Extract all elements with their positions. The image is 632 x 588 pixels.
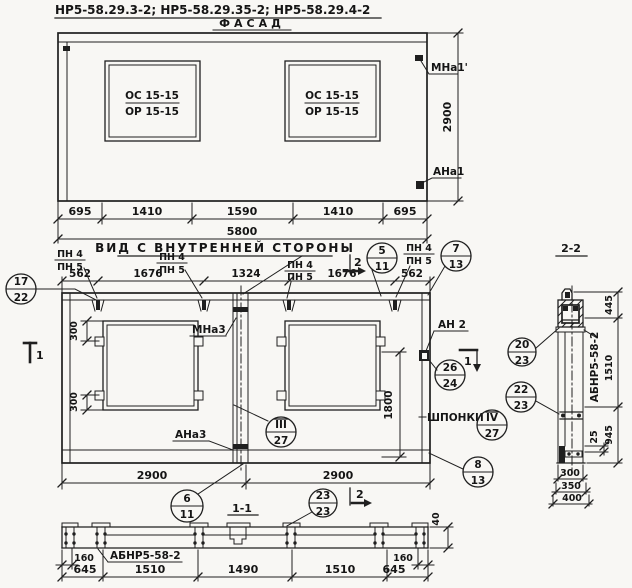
callout-bottom: 23 bbox=[514, 400, 529, 412]
cut-2-label: 2 bbox=[354, 256, 362, 269]
pn4-label: ПН 4 bbox=[57, 249, 83, 260]
pn5-label: ПН 5 bbox=[159, 265, 185, 276]
dim-25: 25 bbox=[589, 430, 600, 443]
callout-bottom: 23 bbox=[515, 355, 530, 367]
dim-5800: 5800 bbox=[227, 225, 258, 238]
section-1-1: 1-1 АБНР5-58-2 bbox=[56, 502, 453, 581]
dim-350: 350 bbox=[561, 481, 581, 492]
shponki-label: ШПОНКИ bbox=[427, 412, 484, 424]
dim-1800: 1800 bbox=[382, 348, 406, 461]
pn4-label: ПН 4 bbox=[287, 260, 313, 271]
dim-1324: 1324 bbox=[231, 268, 260, 280]
facade-window-2: ОС 15-15 ОР 15-15 bbox=[285, 61, 380, 141]
part-mark-label: АБНР5-58-2 bbox=[589, 332, 601, 403]
section-1-1-label: 1-1 bbox=[232, 502, 252, 515]
mark-ana3-label: АНа3 bbox=[175, 429, 206, 441]
facade-label: ФАСАД bbox=[219, 17, 285, 30]
dim-1410-2: 1410 bbox=[323, 205, 354, 218]
dim-300: 300 bbox=[69, 392, 80, 412]
pn4-label: ПН 4 bbox=[406, 243, 432, 254]
callout-bottom: 22 bbox=[14, 292, 29, 304]
anchor-tick bbox=[415, 55, 423, 61]
callout-top: 7 bbox=[452, 243, 459, 255]
section-2-2-shelf bbox=[560, 412, 582, 419]
dim-1800: 1800 bbox=[383, 390, 395, 419]
dim-1510: 1510 bbox=[604, 354, 615, 381]
section-2-2-foot bbox=[557, 446, 585, 463]
corner-anchor-mark bbox=[63, 46, 70, 51]
inner-view: ВИД С ВНУТРЕННЕЙ СТОРОНЫ 562 1676 1324 1… bbox=[24, 240, 484, 507]
pn-label-b: ПН 4 ПН 5 bbox=[157, 252, 202, 298]
dim-400: 400 bbox=[562, 493, 582, 504]
callout-bottom: 24 bbox=[443, 378, 458, 390]
callout-bottom: 11 bbox=[375, 261, 390, 273]
facade-view: ФАСАД ОС 15-15 ОР 15-15 ОС 15-15 ОР 15-1… bbox=[54, 17, 468, 243]
callout-bottom: 13 bbox=[449, 259, 464, 271]
panel-drawing: НР5-58.29.3-2; НР5-58.29.35-2; НР5-58.29… bbox=[0, 0, 632, 588]
dim-2900-facade: 2900 bbox=[441, 101, 454, 132]
mark-mna1-label: МНа1' bbox=[431, 62, 468, 74]
inner-window-2 bbox=[277, 321, 385, 410]
facade-height-dim: 2900 bbox=[427, 29, 463, 205]
drawing-title: НР5-58.29.3-2; НР5-58.29.35-2; НР5-58.29… bbox=[55, 3, 370, 17]
callout-7-13: 7 13 bbox=[428, 241, 471, 295]
facade-window-1: ОС 15-15 ОР 15-15 bbox=[105, 61, 200, 141]
callout-bottom: 27 bbox=[274, 435, 289, 447]
dim-2900-right: 2900 bbox=[323, 469, 354, 482]
callout-bottom: 11 bbox=[180, 509, 195, 521]
dim-645-left: 645 bbox=[74, 563, 97, 576]
cut-mark-2-bottom: 2 bbox=[350, 488, 372, 507]
callout-3-27: III 27 bbox=[234, 405, 296, 447]
callout-top: 6 bbox=[183, 493, 190, 505]
title-block: НР5-58.29.3-2; НР5-58.29.35-2; НР5-58.29… bbox=[55, 3, 381, 18]
section-1-1-dims: 160 160 645 1510 1490 1510 645 40 bbox=[56, 512, 453, 581]
dim-300: 300 bbox=[560, 468, 580, 479]
section-2-2-head bbox=[556, 300, 585, 332]
label-shponki: ШПОНКИ bbox=[419, 412, 484, 424]
dim-1590: 1590 bbox=[227, 205, 258, 218]
cut-mark-1-left: 1 bbox=[24, 343, 44, 362]
mark-mna3-label: МНа3 bbox=[192, 324, 226, 336]
inner-view-title: ВИД С ВНУТРЕННЕЙ СТОРОНЫ bbox=[95, 240, 355, 255]
inner-bottom-dims: 2900 2900 bbox=[58, 463, 434, 489]
dim-695-2: 695 bbox=[394, 205, 417, 218]
dim-695-1: 695 bbox=[69, 205, 92, 218]
callout-top: 5 bbox=[378, 245, 385, 257]
pn4-label: ПН 4 bbox=[159, 252, 185, 263]
facade-bottom-dims: 695 1410 1590 1410 695 5800 bbox=[54, 201, 431, 243]
pn5-label: ПН 5 bbox=[57, 262, 83, 273]
section-2-2-bottom-dims: 300 350 400 bbox=[549, 465, 593, 508]
part-mark-label: АБНР5-58-2 bbox=[110, 550, 181, 562]
window-mark-top: ОС 15-15 bbox=[125, 90, 179, 102]
dim-2900-left: 2900 bbox=[137, 469, 168, 482]
mark-ana1-label: АНа1 bbox=[433, 166, 464, 178]
cut-mark-2-top: 2 bbox=[344, 255, 366, 275]
section-2-2-label: 2-2 bbox=[561, 242, 581, 255]
mark-an2-label: АН 2 bbox=[438, 319, 466, 331]
callout-23-23: 23 23 bbox=[287, 489, 337, 526]
dim-1490: 1490 bbox=[228, 563, 259, 576]
window-mark-top: ОС 15-15 bbox=[305, 90, 359, 102]
cut-1-label: 1 bbox=[464, 355, 472, 368]
callout-26-24: 26 24 bbox=[429, 360, 465, 390]
drawing-sheet: НР5-58.29.3-2; НР5-58.29.35-2; НР5-58.29… bbox=[0, 0, 632, 588]
callout-bottom: 27 bbox=[485, 428, 500, 440]
dim-40: 40 bbox=[431, 512, 442, 526]
dim-300-top: 300 bbox=[69, 317, 103, 345]
callout-top: 23 bbox=[316, 490, 331, 502]
mark-mna1: МНа1' bbox=[415, 55, 468, 74]
callout-8-13: 8 13 bbox=[429, 453, 493, 487]
dim-1510-left: 1510 bbox=[135, 563, 166, 576]
window-mark-bottom: ОР 15-15 bbox=[305, 106, 359, 118]
pn5-label: ПН 5 bbox=[406, 256, 432, 267]
callout-22-23: 22 23 bbox=[506, 382, 559, 414]
callout-top: 17 bbox=[14, 276, 29, 288]
callout-top: IV bbox=[486, 412, 499, 424]
callout-5-11: 5 11 bbox=[367, 243, 397, 296]
cut-2-label: 2 bbox=[356, 488, 364, 501]
callout-top: 26 bbox=[443, 362, 458, 374]
part-mark-2-2: АБНР5-58-2 bbox=[584, 330, 601, 402]
dim-1510-right: 1510 bbox=[325, 563, 356, 576]
callout-top: 22 bbox=[514, 384, 529, 396]
callout-top: 20 bbox=[515, 339, 530, 351]
callout-20-23: 20 23 bbox=[508, 328, 559, 367]
dim-300: 300 bbox=[69, 321, 80, 341]
callout-bottom: 23 bbox=[316, 506, 331, 518]
mark-an2: АН 2 bbox=[419, 319, 468, 361]
dim-945: 945 bbox=[604, 425, 615, 445]
part-mark-1-1: АБНР5-58-2 bbox=[98, 549, 182, 562]
dim-1410-1: 1410 bbox=[132, 205, 163, 218]
callout-bottom: 13 bbox=[471, 475, 486, 487]
pn5-label: ПН 5 bbox=[287, 272, 313, 283]
window-mark-bottom: ОР 15-15 bbox=[125, 106, 179, 118]
callout-top: III bbox=[275, 419, 287, 431]
mark-ana1: АНа1 bbox=[416, 166, 464, 189]
dim-645-right: 645 bbox=[383, 563, 406, 576]
cut-1-label: 1 bbox=[36, 349, 44, 362]
callout-4-27: IV 27 bbox=[477, 410, 507, 440]
dim-445: 445 bbox=[604, 295, 615, 315]
inner-window-1 bbox=[95, 321, 203, 410]
callout-top: 8 bbox=[474, 459, 481, 471]
center-joint-strip bbox=[233, 286, 248, 470]
mark-ana3: АНа3 bbox=[173, 429, 233, 450]
section-2-2: 2-2 bbox=[549, 242, 622, 508]
